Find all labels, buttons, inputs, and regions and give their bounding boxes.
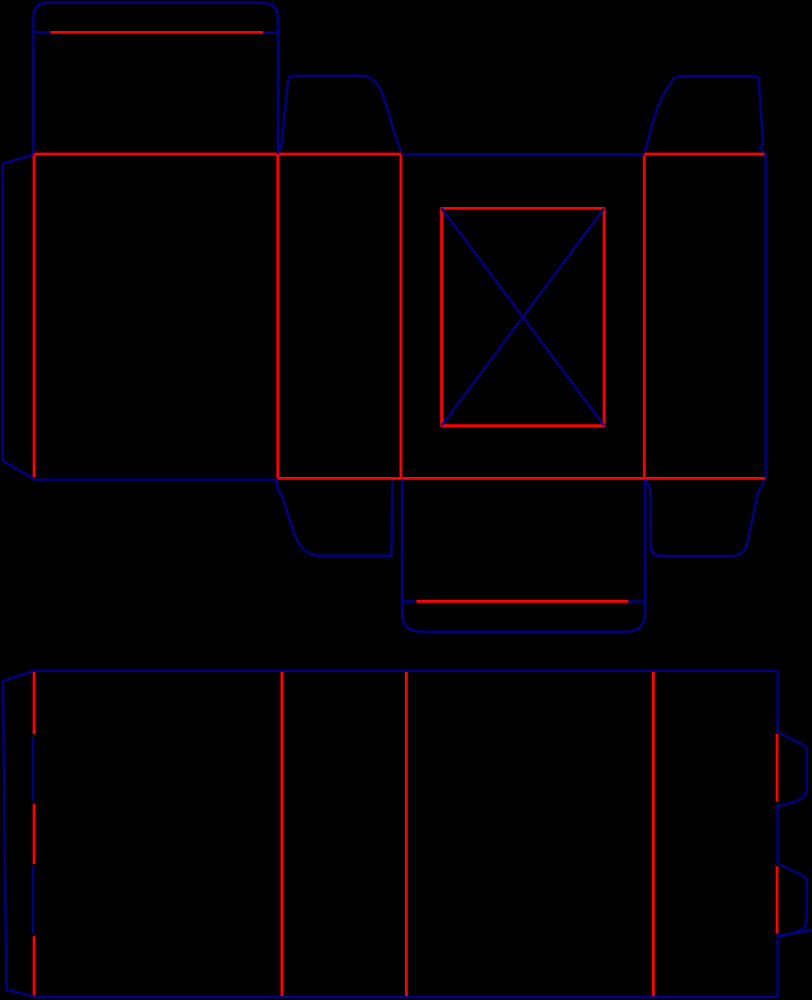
left-edge-cut-cut-line bbox=[3, 681, 6, 990]
tuck-flap-outline-cut-line bbox=[402, 479, 645, 632]
lower-sleeve-blank bbox=[3, 671, 812, 997]
upper-carton-blank bbox=[2, 3, 765, 632]
tab3-clipped-cut-cut-line bbox=[778, 930, 812, 935]
lid-flap-outline-cut-line bbox=[33, 3, 277, 154]
tab2-outline-cut-line bbox=[778, 863, 807, 937]
left-top-slant-cut-cut-line bbox=[3, 671, 34, 681]
dieline-drawing bbox=[0, 0, 812, 1000]
bottom-dust-flap-right-cut-line bbox=[646, 480, 764, 556]
left-bottom-slant-cut-cut-line bbox=[6, 990, 33, 997]
top-dust-flap-right-cut-line bbox=[644, 76, 765, 153]
glue-flap-outline-cut-line bbox=[2, 155, 33, 479]
dieline-viewport bbox=[0, 0, 812, 1000]
tab1-outline-cut-line bbox=[778, 732, 807, 806]
top-dust-flap-left-cut-line bbox=[278, 76, 401, 152]
bottom-dust-flap-left-cut-line bbox=[277, 480, 392, 556]
